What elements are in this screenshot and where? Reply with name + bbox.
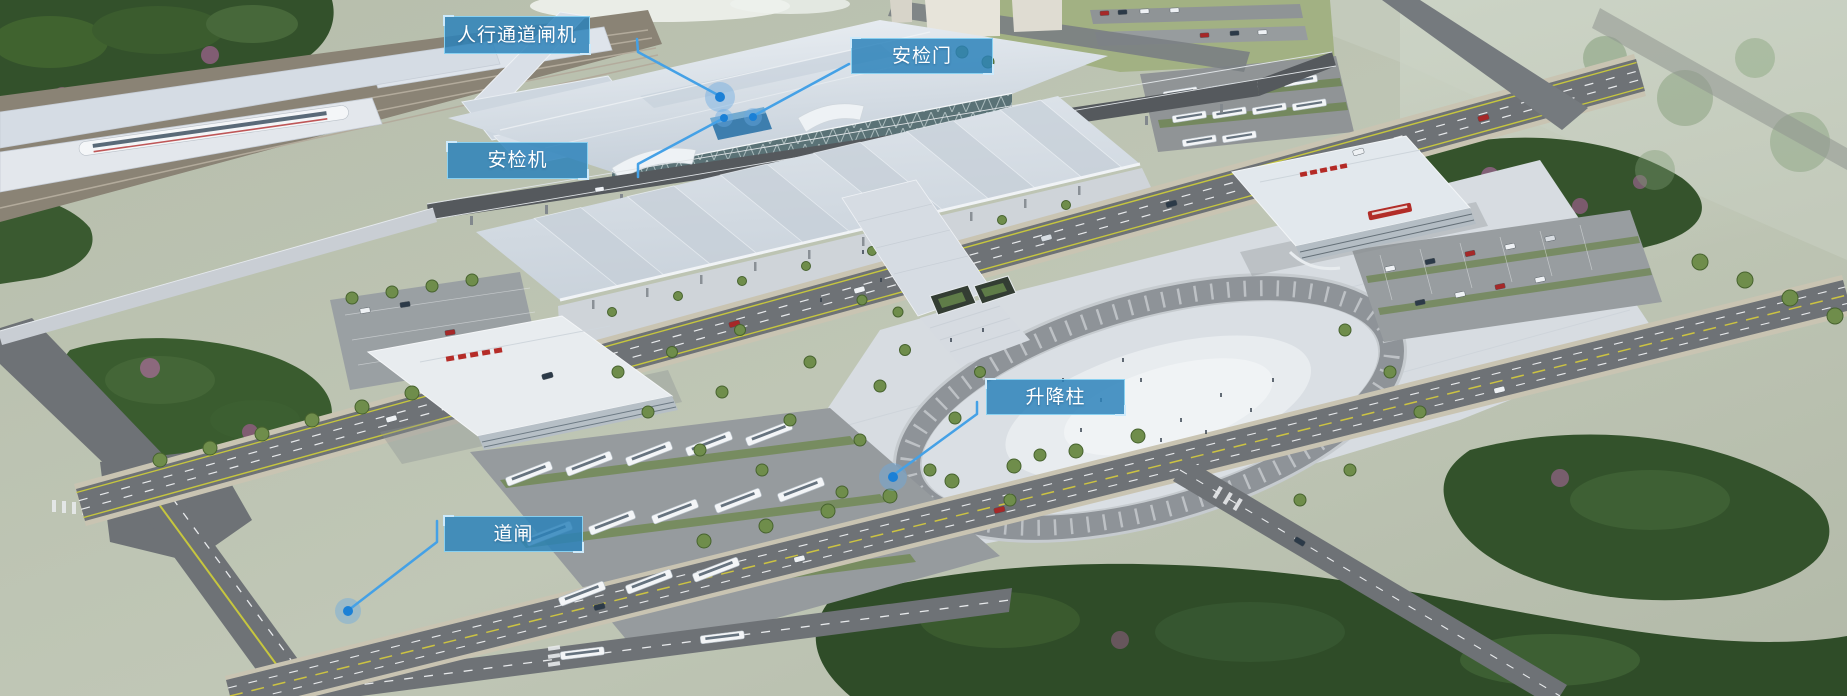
callout-label-barrier-gate: 道闸 xyxy=(444,516,583,552)
callout-label-lift-bollard: 升降柱 xyxy=(986,379,1125,415)
callout-text: 道闸 xyxy=(493,525,533,544)
station-aerial-diagram: 人行通道闸机 安检门 安检机 升降柱 道闸 xyxy=(0,0,1847,696)
callout-text: 升降柱 xyxy=(1025,388,1085,407)
callout-label-pedestrian-gate: 人行通道闸机 xyxy=(444,16,590,54)
callout-label-security-scanner: 安检机 xyxy=(447,142,588,179)
callout-text: 人行通道闸机 xyxy=(457,26,577,45)
callout-text: 安检机 xyxy=(487,151,547,170)
callout-label-security-door: 安检门 xyxy=(851,38,993,74)
aerial-render xyxy=(0,0,1847,696)
callout-text: 安检门 xyxy=(892,47,952,66)
